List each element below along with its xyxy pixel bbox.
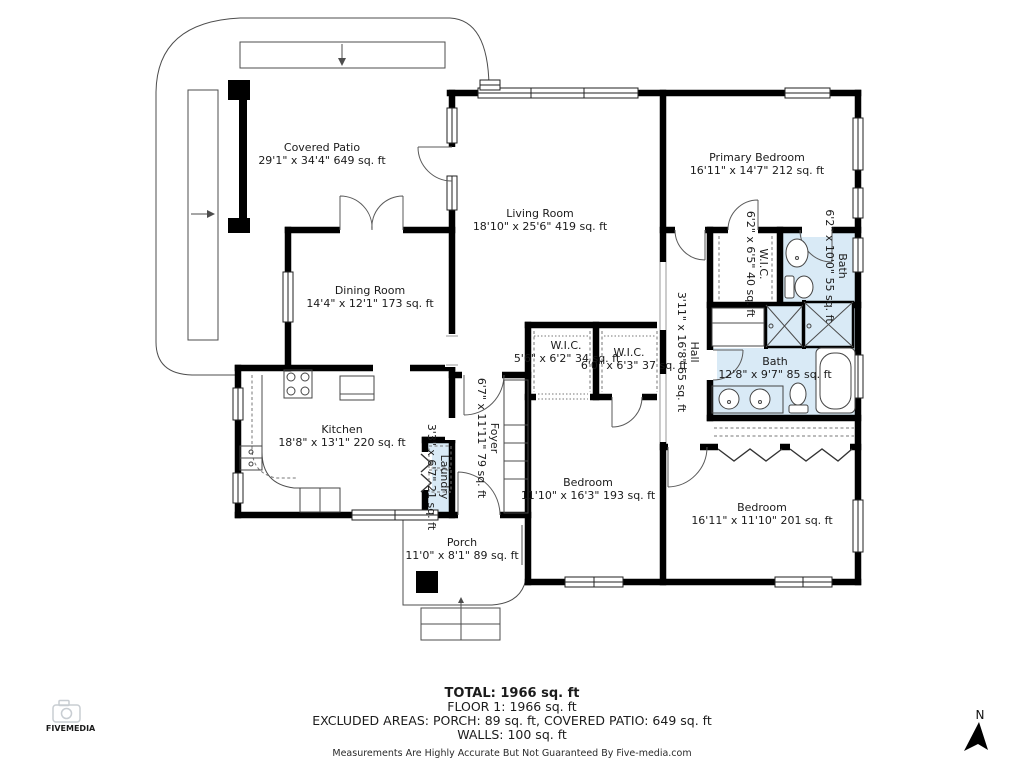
label-bedroom-2: Bedroom [737,501,787,514]
dims-primary-bedroom: 16'11" x 14'7" 212 sq. ft [690,164,825,177]
label-bath-primary: Bath [836,253,849,279]
dims-wic-primary: 6'2" x 6'5" 40 sq. ft [744,211,757,318]
window-kitchen-left-1 [233,388,243,420]
patio-post-wall [239,100,247,218]
fridge-icon [340,376,374,400]
patio-outline-right [240,18,489,86]
floor1-area: FLOOR 1: 1966 sq. ft [447,699,577,714]
camera-icon [53,701,80,723]
dims-living-room: 18'10" x 25'6" 419 sq. ft [473,220,608,233]
dims-bath-primary: 6'2" x 10'0" 55 sq. ft [823,209,836,323]
excluded-areas: EXCLUDED AREAS: PORCH: 89 sq. ft, COVERE… [312,713,712,728]
north-arrow: N [964,708,988,751]
label-bedroom-1: Bedroom [563,476,613,489]
dims-kitchen: 18'8" x 13'1" 220 sq. ft [278,436,406,449]
label-porch: Porch [447,536,477,549]
kitchen-sink [240,446,262,470]
counter-edge [262,375,300,488]
window-kitchen-left-2 [233,473,243,503]
disclaimer: Measurements Are Highly Accurate But Not… [332,748,691,759]
label-wic-1: W.I.C. [550,339,581,352]
pergola-arrow-head [338,58,346,66]
shower-icon-1 [766,305,803,347]
label-laundry: Laundry [438,455,451,500]
label-wic-2: W.I.C. [613,346,644,359]
patio-planter-left [188,90,218,340]
dims-laundry: 3'3" x 6'7" 21 sq. ft [425,424,438,531]
dims-bath-main: 12'8" x 9'7" 85 sq. ft [718,368,832,381]
window-bedroom1-bottom [565,577,623,587]
label-dining-room: Dining Room [335,284,405,297]
window-top-bump [480,80,500,90]
label-bath-main: Bath [762,355,788,368]
dims-wic-2: 6'0" x 6'3" 37 sq. ft [581,359,688,372]
dims-hall: 3'11" x 16'8" 65 sq. ft [675,292,688,413]
dims-bedroom-1: 11'10" x 16'3" 193 sq. ft [521,489,656,502]
planter-arrow-head [207,210,215,218]
window-primary-bath [853,238,863,272]
dims-dining-room: 14'4" x 12'1" 173 sq. ft [306,297,434,310]
steps-arrow-head [458,597,464,603]
floor-plan-page: Covered Patio 29'1" x 34'4" 649 sq. ft L… [0,0,1024,768]
label-kitchen: Kitchen [321,423,362,436]
label-wic-primary: W.I.C. [757,248,770,279]
north-label: N [976,708,985,722]
window-primary-top [785,88,830,98]
dims-covered-patio: 29'1" x 34'4" 649 sq. ft [258,154,386,167]
window-living-top [478,88,638,98]
label-foyer: Foyer [488,423,501,454]
window-living-left-1 [447,108,457,143]
upper-cabinet-dashed [252,375,298,478]
walls-area: WALLS: 100 sq. ft [457,727,567,742]
footer-summary: TOTAL: 1966 sq. ft FLOOR 1: 1966 sq. ft … [312,686,712,759]
label-foyer-group: Foyer 6'7" x 11'11" 79 sq. ft [475,378,501,499]
label-covered-patio: Covered Patio [284,141,360,154]
compass-needle-icon [964,722,988,751]
label-primary-bedroom: Primary Bedroom [709,151,805,164]
toilet-icon [785,276,813,298]
window-bedroom2-bottom [775,577,832,587]
label-hall: Hall [688,341,701,362]
patio-outline-left [156,18,240,375]
porch-post [416,571,438,593]
patio-post-bottom [228,218,250,233]
window-primary-right-1 [853,118,863,170]
label-living-room: Living Room [506,207,574,220]
dims-porch: 11'0" x 8'1" 89 sq. ft [405,549,519,562]
range-icon [284,370,312,398]
window-bedroom2-right [853,500,863,552]
floor-plan-drawing: Covered Patio 29'1" x 34'4" 649 sq. ft L… [0,0,1024,768]
patio-post-top [228,80,250,100]
logo-media: MEDIA [66,724,96,733]
covered-patio [156,18,489,375]
porch-steps-dividers [421,608,500,640]
kitchen-island [300,488,340,512]
logo-five: FIVE [46,724,66,733]
dims-foyer: 6'7" x 11'11" 79 sq. ft [475,378,488,499]
dims-bedroom-2: 16'11" x 11'10" 201 sq. ft [691,514,833,527]
window-primary-right-2 [853,188,863,218]
window-dining-left [283,272,293,322]
label-hall-group: Hall 3'11" x 16'8" 65 sq. ft [675,292,701,413]
sink-icon [786,239,808,267]
fivemedia-logo: FIVE MEDIA [46,701,96,734]
bedroom2-closet-shelf [714,428,854,436]
